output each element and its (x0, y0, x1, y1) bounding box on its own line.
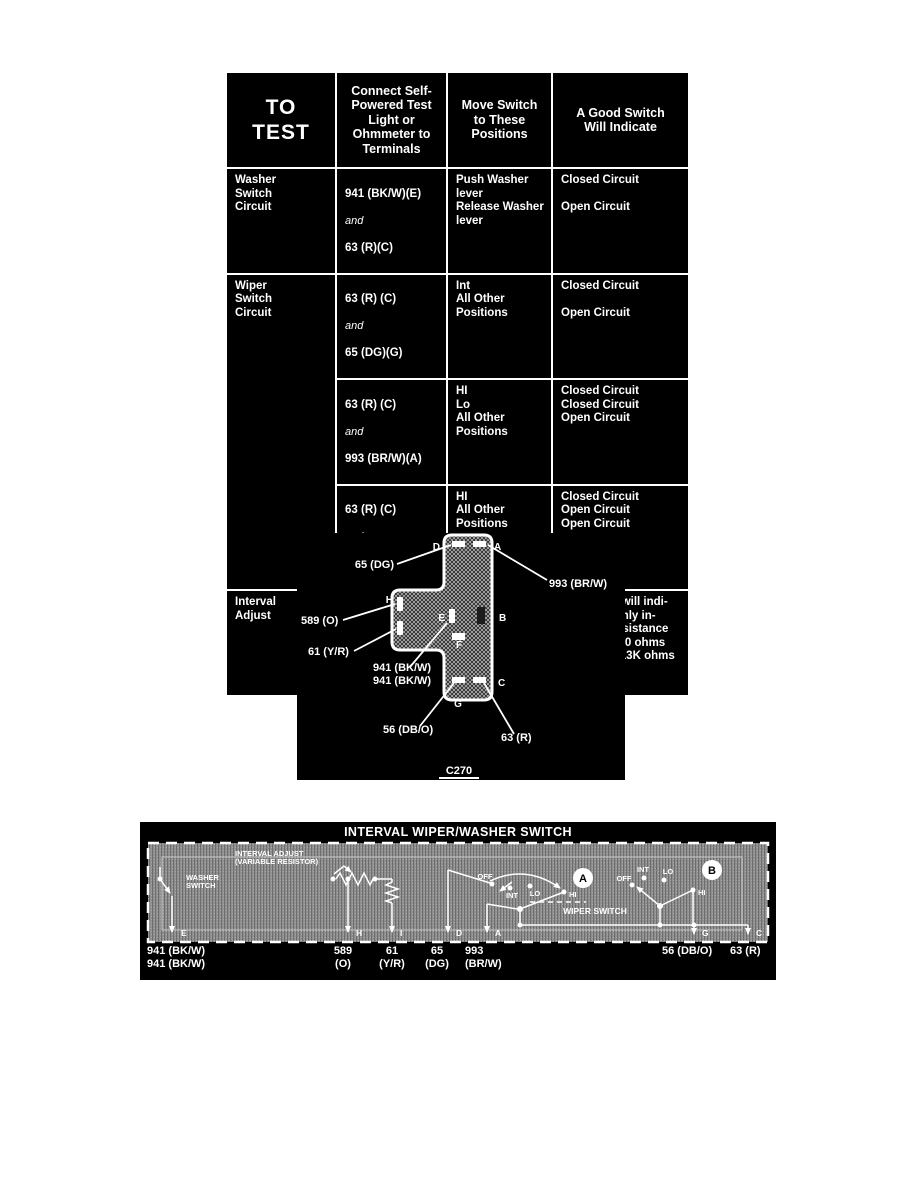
wire-label-d-1: 65 (431, 945, 443, 957)
wire-label-d-2: (DG) (425, 958, 449, 970)
terminal-i: I (400, 928, 402, 938)
cell-result-wiper-2: Closed Circuit Closed Circuit Open Circu… (552, 379, 689, 485)
rotary-b-int: INT (637, 865, 650, 874)
header-connect-terminals: Connect Self- Powered Test Light or Ohmm… (336, 72, 447, 168)
terminal-slot-C (473, 677, 486, 683)
terminal-e: E (181, 928, 187, 938)
terminal-a: A (495, 928, 501, 938)
wire-label-993-brw: 993 (BR/W) (549, 578, 607, 590)
wire-label-941-bkw-1: 941 (BK/W) (373, 662, 431, 674)
knob-b-letter: B (708, 865, 716, 877)
wire-label-e-2: 941 (BK/W) (147, 958, 205, 970)
rotary-a-off: OFF (478, 872, 493, 881)
connector-code: C270 (446, 765, 472, 777)
cell-terminals-wiper-2: 63 (R) (C) and 993 (BR/W)(A) (336, 379, 447, 485)
terminal-g: G (702, 928, 709, 938)
cell-result-wiper-1: Closed Circuit Open Circuit (552, 274, 689, 380)
wire-label-941-bkw-2: 941 (BK/W) (373, 675, 431, 687)
terminal-d: D (456, 928, 462, 938)
conjunction: and (345, 320, 442, 334)
terminal-letter-F: F (456, 640, 462, 651)
wire-label-63-r: 63 (R) (501, 732, 532, 744)
schematic-drawing: INTERVAL WIPER/WASHER SWITCH WASHER SWIT… (140, 822, 776, 980)
terminal-pair-bottom: 65 (DG)(G) (345, 347, 442, 361)
knob-a-letter: A (579, 873, 587, 885)
terminal-letter-C: C (498, 678, 505, 689)
terminal-pair-top: 63 (R) (C) (345, 504, 442, 518)
wire-label-56-dbo: 56 (DB/O) (383, 724, 433, 736)
wire-label-c: 63 (R) (730, 945, 761, 957)
cell-positions-wiper-2: HI Lo All Other Positions (447, 379, 552, 485)
wire-label-a-1: 993 (465, 945, 483, 957)
header-good-switch: A Good Switch Will Indicate (552, 72, 689, 168)
table-header-row: TO TEST Connect Self- Powered Test Light… (226, 72, 689, 168)
terminal-pair-bottom: 993 (BR/W)(A) (345, 453, 442, 467)
wire-label-h-1: 589 (334, 945, 352, 957)
wire-label-a-2: (BR/W) (465, 958, 502, 970)
table-row: Washer Switch Circuit 941 (BK/W)(E) and … (226, 168, 689, 274)
rotary-a-hi: HI (569, 890, 577, 899)
rotary-b-off: OFF (617, 874, 632, 883)
wiper-switch-label: WIPER SWITCH (563, 906, 627, 916)
terminal-pair-top: 941 (BK/W)(E) (345, 188, 442, 202)
schematic-title: INTERVAL WIPER/WASHER SWITCH (344, 825, 572, 839)
cell-terminals-wiper-1: 63 (R) (C) and 65 (DG)(G) (336, 274, 447, 380)
terminal-pair-top: 63 (R) (C) (345, 293, 442, 307)
cell-circuit-washer: Washer Switch Circuit (226, 168, 336, 274)
conjunction: and (345, 215, 442, 229)
connector-code-underline (439, 777, 479, 779)
manual-page: TO TEST Connect Self- Powered Test Light… (0, 0, 918, 1188)
cell-result-washer: Closed Circuit Open Circuit (552, 168, 689, 274)
rotary-b-hi: HI (698, 888, 706, 897)
rotary-a-int: INT (506, 891, 519, 900)
cell-terminals-washer: 941 (BK/W)(E) and 63 (R)(C) (336, 168, 447, 274)
cell-positions-wiper-1: Int All Other Positions (447, 274, 552, 380)
interval-adjust-label-2: (VARIABLE RESISTOR) (235, 857, 319, 866)
wire-label-e-1: 941 (BK/W) (147, 945, 205, 957)
terminal-pair-top: 63 (R) (C) (345, 399, 442, 413)
header-move-switch: Move Switch to These Positions (447, 72, 552, 168)
wire-label-h-2: (O) (335, 958, 351, 970)
terminal-slot-I (397, 621, 403, 635)
terminal-slot-B (477, 607, 485, 624)
header-to-test-text: TO TEST (229, 95, 333, 145)
terminal-pair-bottom: 63 (R)(C) (345, 242, 442, 256)
schematic-figure: INTERVAL WIPER/WASHER SWITCH WASHER SWIT… (140, 822, 776, 980)
terminal-letter-G: G (454, 699, 462, 710)
terminal-slot-A (473, 541, 486, 547)
connector-figure: D A H I E B F G C 65 (DG) 993 (BR/W) 589… (297, 533, 625, 780)
terminal-letter-I: I (390, 624, 393, 635)
terminal-slot-F (452, 633, 465, 640)
conjunction: and (345, 426, 442, 440)
wire-label-65-dg: 65 (DG) (355, 559, 394, 571)
rotary-a-lo: LO (530, 889, 541, 898)
connector-drawing: D A H I E B F G C 65 (DG) 993 (BR/W) 589… (297, 533, 625, 780)
cell-positions-washer: Push Washer lever Release Washer lever (447, 168, 552, 274)
terminal-slot-G (452, 677, 465, 683)
wire-label-i-2: (Y/R) (379, 958, 405, 970)
terminal-slot-D (452, 541, 465, 547)
wire-label-i-1: 61 (386, 945, 398, 957)
terminal-slot-E (449, 609, 455, 623)
terminal-c: C (756, 928, 762, 938)
terminal-slot-H (397, 597, 403, 611)
table-row: Wiper Switch Circuit 63 (R) (C) and 65 (… (226, 274, 689, 380)
washer-switch-label-2: SWITCH (186, 881, 216, 890)
terminal-h: H (356, 928, 362, 938)
wire-label-589-o: 589 (O) (301, 615, 339, 627)
terminal-letter-E: E (438, 613, 445, 624)
wire-label-g: 56 (DB/O) (662, 945, 712, 957)
rotary-b-lo: LO (663, 867, 674, 876)
header-to-test: TO TEST (226, 72, 336, 168)
terminal-letter-B: B (499, 613, 506, 624)
wire-label-61-yr: 61 (Y/R) (308, 646, 349, 658)
